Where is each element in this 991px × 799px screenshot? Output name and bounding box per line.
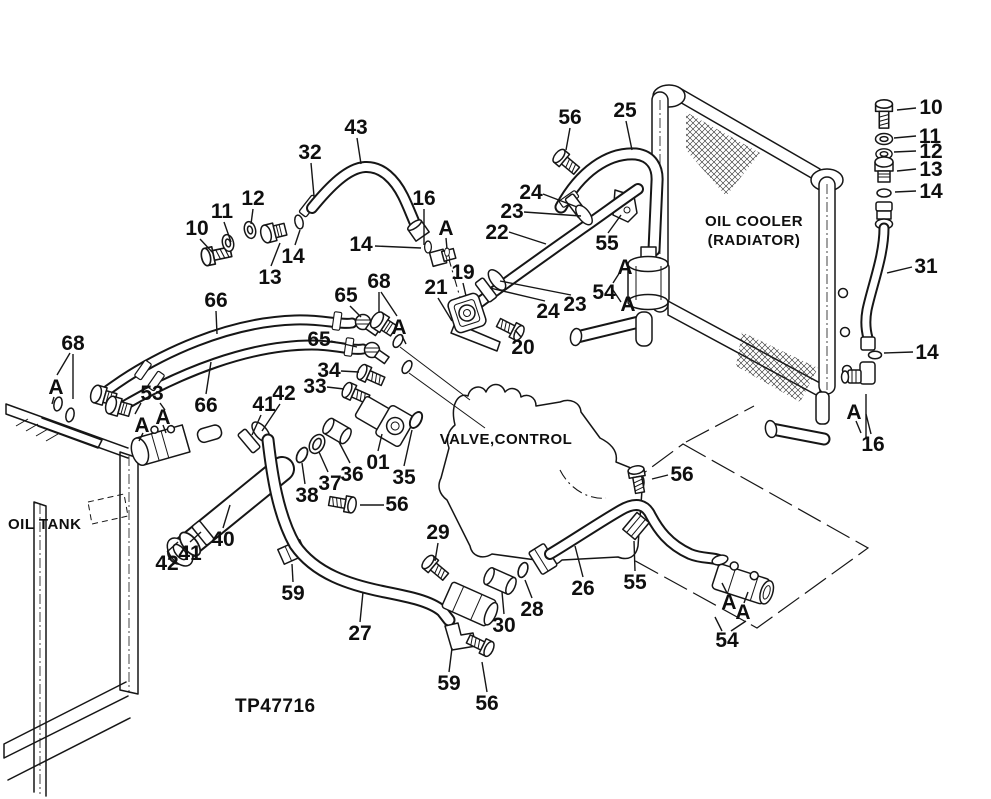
callout-A: A <box>721 591 736 614</box>
leader-line <box>652 475 668 479</box>
oil-cooler-label-line2: (RADIATOR) <box>708 232 801 249</box>
callout-31: 31 <box>914 255 938 278</box>
ring-38 <box>294 446 310 465</box>
oil-cooler-label-line1: OIL COOLER <box>705 213 803 230</box>
callout-56: 56 <box>670 463 693 486</box>
callout-35: 35 <box>392 466 416 489</box>
right-fitting-stack <box>842 100 894 384</box>
leader-line <box>360 592 363 622</box>
callout-19: 19 <box>451 261 474 284</box>
parts-diagram-page: 101112131432431416A56252423225554AA24231… <box>0 0 991 799</box>
callout-43: 43 <box>344 116 367 139</box>
callout-10: 10 <box>185 217 208 240</box>
leader-line <box>884 352 913 353</box>
parts-diagram: 101112131432431416A56252423225554AA24231… <box>0 0 991 799</box>
fitting-13 <box>259 220 288 244</box>
leader-line <box>894 151 916 152</box>
callout-65: 65 <box>307 328 331 351</box>
callout-55: 55 <box>595 232 619 255</box>
leader-line <box>463 283 466 296</box>
leader-line <box>887 267 912 273</box>
leader-line <box>502 592 504 614</box>
callout-55: 55 <box>623 571 647 594</box>
leader-line <box>350 306 361 317</box>
callout-23: 23 <box>500 200 523 223</box>
leader-line <box>626 121 632 150</box>
callout-14: 14 <box>915 341 939 364</box>
callout-12: 12 <box>241 187 264 210</box>
callout-A: A <box>735 601 750 624</box>
leader-line <box>894 136 916 138</box>
callout-23: 23 <box>563 293 586 316</box>
callout-A: A <box>391 316 406 339</box>
callout-13: 13 <box>919 158 942 181</box>
callout-66: 66 <box>204 289 227 312</box>
oring-14 <box>293 214 304 230</box>
washer-11 <box>876 134 893 145</box>
callout-54: 54 <box>592 281 616 304</box>
callout-37: 37 <box>318 472 341 495</box>
oring-28 <box>516 561 530 578</box>
leader-line <box>357 138 361 164</box>
callout-53: 53 <box>140 382 163 405</box>
callout-A: A <box>438 217 453 240</box>
callout-11: 11 <box>211 200 234 223</box>
callout-16: 16 <box>861 433 884 456</box>
callout-56: 56 <box>475 692 498 715</box>
callout-10: 10 <box>919 96 942 119</box>
callout-59: 59 <box>281 582 304 605</box>
leader-line <box>897 169 916 171</box>
leader-line <box>509 232 546 244</box>
callout-A: A <box>48 376 63 399</box>
callout-38: 38 <box>295 484 319 507</box>
valve-control-block <box>439 385 644 567</box>
leader-line <box>295 230 300 245</box>
leader-line <box>341 371 359 372</box>
oring-14 <box>877 189 891 197</box>
callout-21: 21 <box>424 276 448 299</box>
leader-line <box>311 163 314 196</box>
callout-32: 32 <box>298 141 321 164</box>
bolt-56 <box>551 147 582 177</box>
callout-59: 59 <box>437 672 460 695</box>
leader-line <box>524 212 581 216</box>
washer-12 <box>243 220 258 239</box>
callout-54: 54 <box>715 629 739 652</box>
callout-42: 42 <box>155 552 178 575</box>
hose-43-assembly <box>200 167 456 267</box>
oil-tank <box>4 404 138 796</box>
leader-line <box>251 209 253 224</box>
oring-35 <box>407 410 424 430</box>
oring-14 <box>425 241 432 253</box>
oil-cooler-radiator <box>569 85 851 439</box>
leader-line <box>327 387 344 389</box>
callout-14: 14 <box>349 233 373 256</box>
callout-56: 56 <box>558 106 581 129</box>
callout-22: 22 <box>485 221 508 244</box>
callout-A: A <box>134 414 149 437</box>
oil-tank-label: OIL TANK <box>8 516 81 533</box>
fitting-13 <box>875 157 893 182</box>
callout-41: 41 <box>252 393 276 416</box>
callout-33: 33 <box>303 375 326 398</box>
callout-A: A <box>155 406 170 429</box>
suction-tube-40 <box>127 419 282 571</box>
callout-14: 14 <box>919 180 943 203</box>
leader-line <box>302 463 305 484</box>
leader-line <box>895 191 916 192</box>
bolt-10 <box>876 100 893 128</box>
callout-41: 41 <box>178 542 202 565</box>
callout-56: 56 <box>385 493 408 516</box>
callout-25: 25 <box>613 99 637 122</box>
leader-line <box>866 414 871 434</box>
leader-line <box>897 108 916 110</box>
callout-66: 66 <box>194 394 217 417</box>
leader-line <box>449 648 452 672</box>
callout-36: 36 <box>340 463 363 486</box>
leader-line <box>292 564 293 582</box>
leader-line <box>216 311 217 334</box>
callout-40: 40 <box>211 528 234 551</box>
sleeve-36 <box>321 417 354 446</box>
callout-27: 27 <box>348 622 371 645</box>
sleeve-30 <box>482 566 519 595</box>
callout-42: 42 <box>272 382 295 405</box>
callout-29: 29 <box>426 521 449 544</box>
bolt-56 <box>328 493 357 513</box>
callout-68: 68 <box>367 270 391 293</box>
valve-control-label: VALVE,CONTROL <box>440 431 573 448</box>
ring-37 <box>306 432 328 456</box>
callout-65: 65 <box>334 284 358 307</box>
callout-14: 14 <box>281 245 305 268</box>
leader-line <box>608 215 621 233</box>
leader-line <box>482 662 487 692</box>
callout-A: A <box>620 293 635 316</box>
drawing-number: TP47716 <box>235 696 316 717</box>
leader-line <box>525 580 532 598</box>
callout-20: 20 <box>511 336 534 359</box>
leader-line <box>634 541 635 571</box>
callout-26: 26 <box>571 577 594 600</box>
leader-line <box>271 243 280 266</box>
leader-line <box>339 442 350 463</box>
leader-line <box>319 452 328 472</box>
callout-13: 13 <box>258 266 281 289</box>
callout-A: A <box>846 401 861 424</box>
leader-line <box>566 128 570 150</box>
callout-24: 24 <box>536 300 560 323</box>
callout-30: 30 <box>492 614 515 637</box>
bolt-34 <box>355 363 386 389</box>
callout-A: A <box>617 256 632 279</box>
elbow-fitting-65 <box>365 343 390 364</box>
callout-16: 16 <box>412 187 435 210</box>
leader-line <box>375 246 421 248</box>
callout-01: 01 <box>366 451 390 474</box>
callout-28: 28 <box>520 598 544 621</box>
callout-68: 68 <box>61 332 85 355</box>
